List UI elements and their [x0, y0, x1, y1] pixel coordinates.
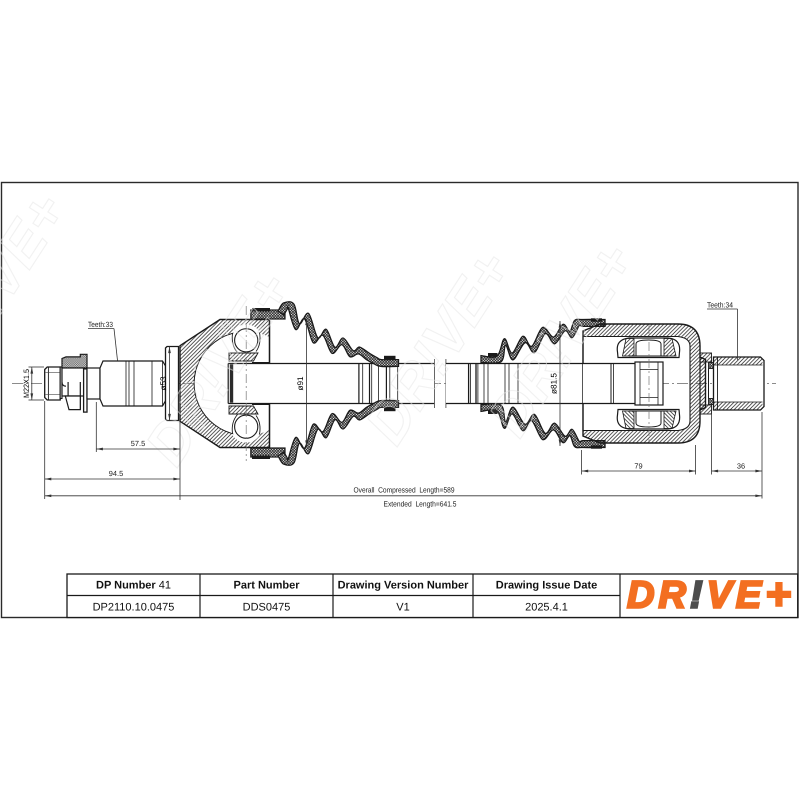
svg-text:Extended Length=641.5: Extended Length=641.5 [384, 500, 457, 509]
svg-text:ø53: ø53 [159, 376, 168, 391]
svg-text:Drawing Version Number: Drawing Version Number [338, 580, 470, 592]
svg-text:V1: V1 [396, 602, 409, 614]
svg-text:Drawing Issue Date: Drawing Issue Date [496, 580, 597, 592]
svg-text:Teeth:33: Teeth:33 [88, 320, 113, 329]
svg-text:57.5: 57.5 [131, 439, 145, 448]
svg-text:DDS0475: DDS0475 [243, 602, 291, 614]
svg-text:36: 36 [737, 462, 745, 471]
svg-text:DP Number 41: DP Number 41 [96, 580, 171, 592]
svg-text:M22X1.5: M22X1.5 [22, 368, 31, 398]
svg-text:ø91: ø91 [296, 376, 305, 391]
svg-text:2025.4.1: 2025.4.1 [525, 602, 568, 614]
svg-text:ø81.5: ø81.5 [550, 373, 559, 394]
svg-text:94.5: 94.5 [109, 469, 123, 478]
svg-text:Overall Compressed Length=58: Overall Compressed Length=589 [354, 486, 455, 495]
svg-text:Part Number: Part Number [233, 580, 300, 592]
svg-text:Teeth:34: Teeth:34 [707, 301, 733, 310]
svg-text:DR!VE+: DR!VE+ [627, 570, 795, 619]
svg-text:DP2110.10.0475: DP2110.10.0475 [93, 602, 175, 614]
svg-text:79: 79 [634, 462, 642, 471]
